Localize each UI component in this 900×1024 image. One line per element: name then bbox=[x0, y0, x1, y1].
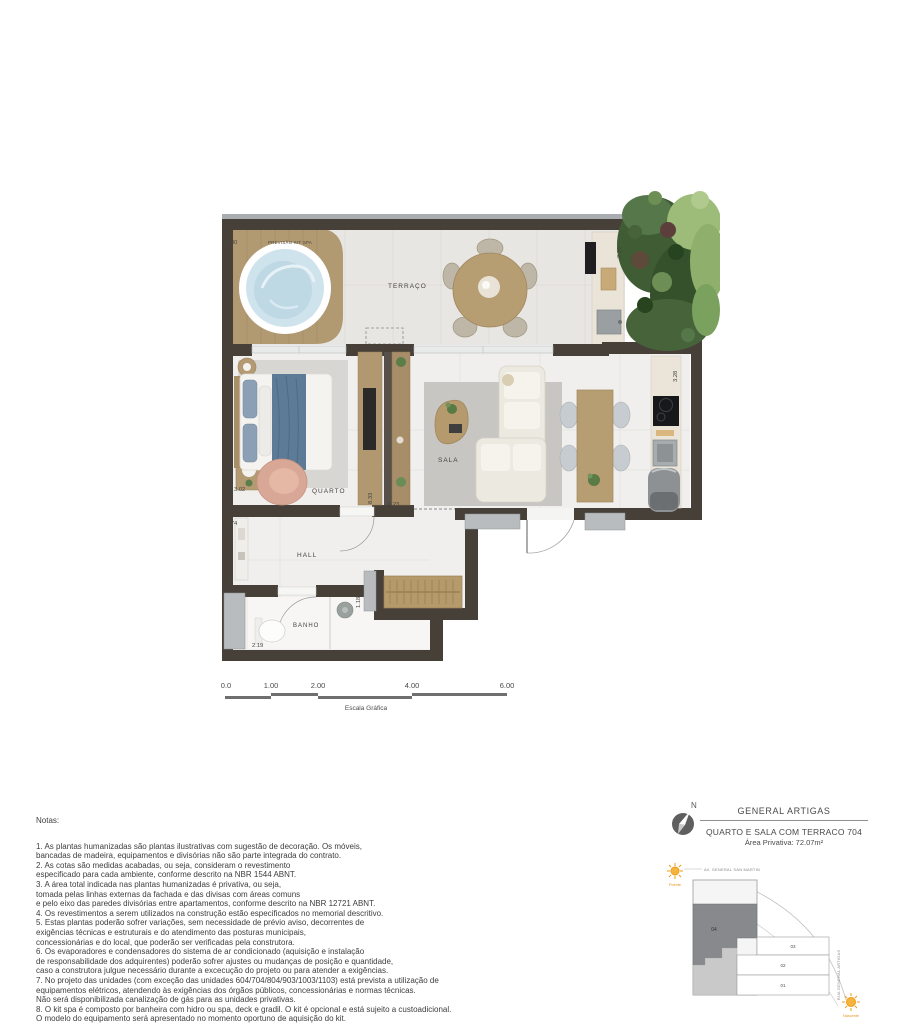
scale-bar: 0.0 1.00 2.00 4.00 6.00 Escala Gráfica bbox=[210, 672, 530, 717]
dim-terrace-width: 8.30 bbox=[226, 240, 237, 246]
note-line: equipamentos elétricos, atendendo às exi… bbox=[36, 986, 596, 996]
scale-tick-2: 2.00 bbox=[311, 681, 326, 690]
note-line: 4. Os revestimentos a serem utilizados n… bbox=[36, 909, 596, 919]
note-line: e pelo eixo das paredes divisórias entre… bbox=[36, 899, 596, 909]
floor-plan-sheet: TERRAÇO QUARTO SALA HALL BANHO PREVISÃO … bbox=[0, 0, 900, 1024]
closet bbox=[384, 576, 462, 608]
terrace-sink bbox=[597, 310, 621, 334]
floor-plan-drawing: TERRAÇO QUARTO SALA HALL BANHO PREVISÃO … bbox=[200, 185, 720, 680]
note-line: caso a construtora julgue necessário dur… bbox=[36, 966, 596, 976]
site-unit-03-label: 03 bbox=[790, 944, 796, 949]
note-line: 2. As cotas são medidas acabadas, ou sej… bbox=[36, 861, 596, 871]
north-label: N bbox=[691, 801, 697, 810]
north-arrow: N bbox=[666, 796, 702, 840]
scale-tick-3: 4.00 bbox=[405, 681, 420, 690]
sun-west-icon bbox=[667, 863, 683, 879]
dim-hall-left: 1.46 bbox=[229, 578, 235, 589]
sun-west-label: Poente bbox=[669, 883, 681, 887]
scale-bar-segments bbox=[225, 693, 507, 699]
site-map: 04 03 02 01 AV. GENERAL SAN MARTIN RUA G… bbox=[650, 850, 900, 1024]
note-line: 1. As plantas humanizadas são plantas il… bbox=[36, 842, 596, 852]
note-line: O modelo do equipamento será apresentado… bbox=[36, 1014, 596, 1024]
scale-tick-0: 0.0 bbox=[221, 681, 231, 690]
project-title: GENERAL ARTIGAS bbox=[700, 806, 868, 821]
note-line: bancadas de madeira, equipamentos e divi… bbox=[36, 851, 596, 861]
note-line: Não será disponibilizada canalização de … bbox=[36, 995, 596, 1005]
entry-door bbox=[527, 508, 574, 553]
note-line: 7. No projeto das unidades (com exceção … bbox=[36, 976, 596, 986]
site-unit-02-label: 02 bbox=[780, 963, 786, 968]
cutting-board bbox=[601, 268, 616, 290]
terrace-sink-faucet bbox=[618, 320, 622, 324]
notes-block: Notas: 1. As plantas humanizadas são pla… bbox=[36, 816, 596, 1024]
note-line: tomada pelas linhas externas da fachada … bbox=[36, 890, 596, 900]
terrace-grill bbox=[585, 242, 596, 274]
unit-title: QUARTO E SALA COM TERRACO 704 bbox=[700, 827, 868, 837]
site-unit-01-label: 01 bbox=[780, 983, 786, 988]
note-line: 3. A área total indicada nas plantas hum… bbox=[36, 880, 596, 890]
dim-sala-width: 6.23 bbox=[388, 502, 399, 508]
note-line: especificado para cada ambiente, conform… bbox=[36, 870, 596, 880]
site-unit-04-label: 04 bbox=[711, 927, 717, 933]
dim-closet: 1.18 bbox=[356, 597, 362, 608]
private-area: Área Privativa: 72.07m² bbox=[700, 838, 868, 847]
label-banho: BANHO bbox=[293, 623, 319, 629]
label-sala: SALA bbox=[438, 457, 459, 464]
hall-console bbox=[235, 518, 248, 580]
dim-kitchen-right: 3.28 bbox=[673, 371, 679, 382]
vertical-garden-plants bbox=[617, 191, 720, 351]
note-line: 5. Estas plantas poderão sofrer variaçõe… bbox=[36, 918, 596, 928]
note-line: de responsabilidade dos adquirentes) pod… bbox=[36, 957, 596, 967]
label-quarto: QUARTO bbox=[312, 488, 346, 495]
street-right-label: RUA GENERAL ARTIGAS bbox=[836, 950, 841, 1001]
notes-title: Notas: bbox=[36, 816, 596, 826]
note-line: 6. Os evaporadores e condensadores do si… bbox=[36, 947, 596, 957]
note-line: concessionárias e do local, que poderão … bbox=[36, 938, 596, 948]
note-line: 8. O kit spa é composto por banheira com… bbox=[36, 1005, 596, 1015]
sun-east-label: Nascente bbox=[843, 1014, 859, 1018]
dim-terrace-right: 2.25 bbox=[617, 247, 623, 258]
scale-tick-1: 1.00 bbox=[264, 681, 279, 690]
dim-banho-bottom: 2.19 bbox=[252, 643, 263, 649]
label-kit-spa: PREVISÃO KIT SPA bbox=[268, 240, 312, 245]
scale-tick-4: 6.00 bbox=[500, 681, 515, 690]
title-block: GENERAL ARTIGAS QUARTO E SALA COM TERRAC… bbox=[700, 806, 868, 847]
note-line: exigências técnicas e estruturais e do a… bbox=[36, 928, 596, 938]
street-top-label: AV. GENERAL SAN MARTIN bbox=[704, 867, 760, 872]
scale-bar-label: Escala Gráfica bbox=[345, 705, 388, 712]
label-hall: HALL bbox=[297, 552, 317, 559]
spa-water-swirl bbox=[254, 261, 312, 319]
label-terraco: TERRAÇO bbox=[388, 283, 427, 290]
partition-wardrobe bbox=[358, 352, 410, 505]
dim-hall-top: 4.74 bbox=[226, 521, 238, 527]
dim-partition: 8.33 bbox=[368, 493, 374, 504]
dim-quarto-left: 3.02 bbox=[234, 487, 245, 493]
